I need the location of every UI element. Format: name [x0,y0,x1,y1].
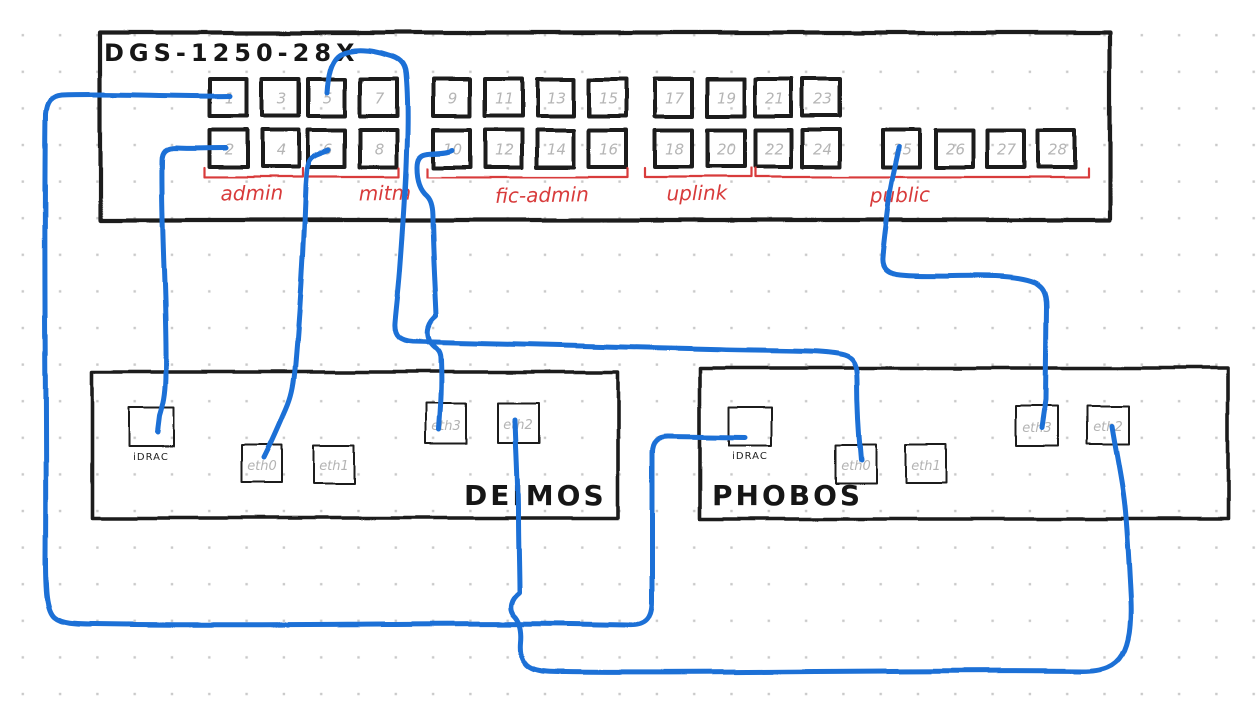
switch-port-number: 4 [277,141,287,159]
switch-port-number: 14 [547,141,566,159]
switch-port-number: 9 [448,90,458,108]
server-port-label: eth0 [841,459,871,474]
switch-port-number: 27 [997,141,1017,159]
switch-port-number: 21 [765,90,784,108]
server-port-label: iDRAC [732,451,768,462]
switch-port-number: 20 [717,141,736,159]
switch-port-number: 24 [813,141,832,159]
switch-port-number: 13 [547,90,566,108]
switch-port-number: 16 [599,141,618,159]
whiteboard-stage: DGS-1250-28X 123456789101112131415161718… [0,0,1256,703]
server-port-label: eth2 [1093,420,1123,435]
switch-port-number: 15 [599,90,618,108]
switch-port-number: 8 [375,141,385,159]
switch-port-number: 23 [813,90,832,108]
switch-port-number: 26 [946,141,965,159]
switch-port-number: 28 [1048,141,1067,159]
switch-port-number: 12 [495,141,514,159]
switch-port-number: 22 [765,141,784,159]
port-group-label-public[interactable]: public [869,182,931,207]
switch-port-number: 19 [717,90,736,108]
switch-port-number: 11 [495,90,514,108]
server-port-label: eth0 [247,459,277,474]
switch-title[interactable]: DGS-1250-28X [104,39,360,67]
port-group-label-admin[interactable]: admin [220,180,283,205]
server-port-label: iDRAC [133,452,169,463]
switch-port-number: 3 [277,90,287,108]
server-port-label: eth3 [1022,421,1052,436]
port-group-label-uplink[interactable]: uplink [666,180,729,205]
server-port-label: eth1 [911,459,941,474]
server-port-label: eth3 [431,419,461,434]
server-port-label: eth1 [319,459,349,474]
switch-port-number: 18 [665,141,684,159]
server-name[interactable]: DEIMOS [464,479,607,512]
switch-port-number: 17 [665,90,685,108]
whiteboard-canvas[interactable]: DGS-1250-28X 123456789101112131415161718… [0,0,1256,703]
port-group-label-fic-admin[interactable]: fic-admin [495,182,589,208]
switch-port-number: 7 [375,90,385,108]
server-port-label: eth2 [503,418,533,433]
